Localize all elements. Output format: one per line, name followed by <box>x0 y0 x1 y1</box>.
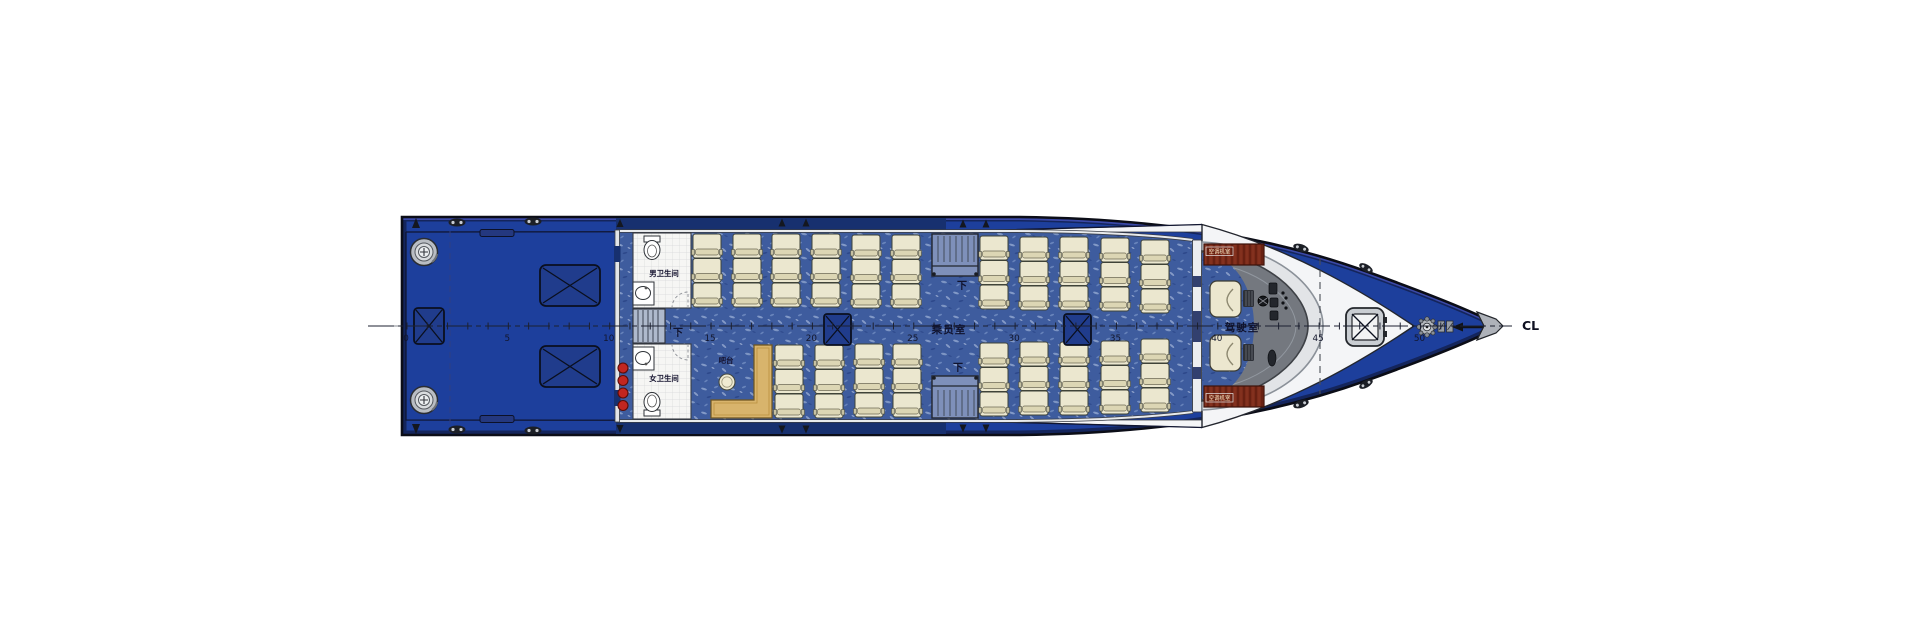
seat-armrest <box>802 361 805 367</box>
seat-backrest <box>1144 403 1167 409</box>
seat-armrest <box>1168 379 1171 385</box>
seat-backrest <box>855 299 878 305</box>
stern-hatch-top <box>540 265 600 306</box>
seat-armrest <box>1059 253 1062 259</box>
frame-number: 0 <box>403 334 409 344</box>
frame-number: 10 <box>603 334 615 344</box>
seat-armrest <box>1059 358 1062 364</box>
ac-cabinet-upper: 空调机室 <box>1204 244 1264 265</box>
rear-door-gap-top <box>614 246 621 262</box>
seat-armrest <box>891 251 894 257</box>
seat-armrest <box>839 250 842 256</box>
seat-armrest <box>851 300 854 306</box>
seat-armrest <box>851 251 854 257</box>
seat-armrest <box>814 361 817 367</box>
seat-armrest <box>1168 355 1171 361</box>
seat-backrest <box>1063 301 1086 307</box>
seat-backrest <box>1144 304 1167 310</box>
sink-basin <box>636 287 651 300</box>
seat-armrest <box>919 275 922 281</box>
seat-armrest <box>771 274 774 280</box>
seat-armrest <box>1047 277 1050 283</box>
seat-backrest <box>983 383 1006 389</box>
seat-armrest <box>979 276 982 282</box>
frame-number: 25 <box>907 334 918 344</box>
seat-backrest <box>1104 302 1127 308</box>
seat-armrest <box>892 360 895 366</box>
seat-armrest <box>802 385 805 391</box>
seat-armrest <box>1140 379 1143 385</box>
seat-armrest <box>879 300 882 306</box>
seat-armrest <box>1087 302 1090 308</box>
seat-armrest <box>1019 253 1022 259</box>
stairs-down-upper-label: 下 <box>957 280 967 292</box>
seat-backrest <box>858 359 881 365</box>
passenger-cabin-label: 乘员室 <box>931 323 967 336</box>
seat-armrest <box>720 299 723 305</box>
seat-backrest <box>736 274 759 280</box>
seat-armrest <box>1047 382 1050 388</box>
seat-armrest <box>1019 407 1022 413</box>
capstan-upper <box>411 239 438 266</box>
seat-armrest <box>692 274 695 280</box>
seat-backrest <box>895 275 918 281</box>
seat-armrest <box>919 300 922 306</box>
frame-number: 50 <box>1414 334 1426 344</box>
seat-armrest <box>811 274 814 280</box>
stairs-down-aft-label: 下 <box>673 327 683 339</box>
seat-armrest <box>1100 278 1103 284</box>
seat-backrest <box>1144 255 1167 261</box>
seat-armrest <box>879 275 882 281</box>
seat-backrest <box>1023 357 1046 363</box>
seat-armrest <box>1007 276 1010 282</box>
seat-armrest <box>1087 358 1090 364</box>
seat-armrest <box>882 384 885 390</box>
seat-armrest <box>882 409 885 415</box>
seat-armrest <box>920 384 923 390</box>
seat-armrest <box>1019 382 1022 388</box>
seat-armrest <box>1100 303 1103 309</box>
seat-armrest <box>760 250 763 256</box>
seat-armrest <box>771 299 774 305</box>
frame-number: 5 <box>505 334 511 344</box>
seat-armrest <box>1059 277 1062 283</box>
seat-armrest <box>1168 404 1171 410</box>
seat-armrest <box>1140 404 1143 410</box>
seat-armrest <box>1059 302 1062 308</box>
sink-tap <box>645 363 648 366</box>
seat-armrest <box>1128 278 1131 284</box>
seat-backrest <box>1104 381 1127 387</box>
seat-armrest <box>892 384 895 390</box>
seat-armrest <box>1047 407 1050 413</box>
seat-armrest <box>842 385 845 391</box>
seat-armrest <box>979 359 982 365</box>
seat-armrest <box>814 385 817 391</box>
seat-armrest <box>799 274 802 280</box>
seat-backrest <box>696 249 719 255</box>
seat-backrest <box>1144 379 1167 385</box>
sink-basin <box>636 352 651 365</box>
seat-armrest <box>979 383 982 389</box>
seat-armrest <box>1059 407 1062 413</box>
frame-number: 40 <box>1211 334 1223 344</box>
seat-backrest <box>895 250 918 256</box>
seat-armrest <box>814 410 817 416</box>
seat-armrest <box>1007 359 1010 365</box>
seat-armrest <box>1047 253 1050 259</box>
seat-backrest <box>1023 382 1046 388</box>
seat-backrest <box>818 385 841 391</box>
ac-cabinet-lower-label: 空调机室 <box>1209 394 1231 402</box>
seat-armrest <box>1168 256 1171 262</box>
cabin-hatch-fwd <box>1064 314 1091 345</box>
seat-backrest <box>696 298 719 304</box>
seat-backrest <box>983 300 1006 306</box>
seat-armrest <box>891 275 894 281</box>
stairwell-upper <box>932 234 978 276</box>
seat-armrest <box>839 274 842 280</box>
sink-tap <box>645 287 648 290</box>
seat-armrest <box>760 299 763 305</box>
seat-backrest <box>775 298 798 304</box>
seat-armrest <box>892 409 895 415</box>
seat-backrest <box>983 251 1006 257</box>
seat-armrest <box>732 299 735 305</box>
seat-backrest <box>775 274 798 280</box>
seat-armrest <box>1047 302 1050 308</box>
seat-armrest <box>774 385 777 391</box>
seat-armrest <box>1168 280 1171 286</box>
seat-backrest <box>896 359 919 365</box>
seat-armrest <box>1019 358 1022 364</box>
seat-armrest <box>979 252 982 258</box>
seat-backrest <box>983 407 1006 413</box>
seat-backrest <box>1063 406 1086 412</box>
seat-backrest <box>815 298 838 304</box>
seat-armrest <box>1128 357 1131 363</box>
seat-backrest <box>1104 253 1127 259</box>
seat-backrest <box>858 408 881 414</box>
seat-backrest <box>1023 406 1046 412</box>
seat-armrest <box>1128 303 1131 309</box>
seat-armrest <box>1007 252 1010 258</box>
console-lower-pad <box>1268 350 1276 366</box>
seat-backrest <box>896 384 919 390</box>
frame-number: 15 <box>704 334 715 344</box>
seat-armrest <box>979 301 982 307</box>
seat-armrest <box>854 360 857 366</box>
seat-armrest <box>1100 406 1103 412</box>
seat-armrest <box>732 274 735 280</box>
seat-backrest <box>736 249 759 255</box>
seat-armrest <box>1007 383 1010 389</box>
seat-backrest <box>1144 354 1167 360</box>
seat-armrest <box>1100 381 1103 387</box>
seat-backrest <box>1063 357 1086 363</box>
seat-armrest <box>1087 253 1090 259</box>
mens-toilet-label: 男卫生间 <box>649 269 679 278</box>
seat-armrest <box>920 409 923 415</box>
seat-armrest <box>732 250 735 256</box>
frame-number: 35 <box>1110 334 1121 344</box>
seat-armrest <box>891 300 894 306</box>
seat-armrest <box>854 384 857 390</box>
seat-armrest <box>811 250 814 256</box>
seat-armrest <box>879 251 882 257</box>
seat-backrest <box>736 298 759 304</box>
seat-backrest <box>818 360 841 366</box>
seat-armrest <box>720 274 723 280</box>
seat-armrest <box>692 299 695 305</box>
seat-backrest <box>855 250 878 256</box>
seat-backrest <box>1023 301 1046 307</box>
seat-backrest <box>775 249 798 255</box>
seat-armrest <box>1128 254 1131 260</box>
seat-backrest <box>696 274 719 280</box>
seat-backrest <box>818 409 841 415</box>
seat-backrest <box>855 275 878 281</box>
seat-armrest <box>979 408 982 414</box>
seat-armrest <box>760 274 763 280</box>
stern-hatch-bottom <box>540 346 600 387</box>
seat-armrest <box>811 299 814 305</box>
seat-armrest <box>1100 254 1103 260</box>
capstan-lower <box>411 387 438 414</box>
cabin-hatch-aft <box>824 314 851 345</box>
frame-number: 30 <box>1008 334 1020 344</box>
seat-armrest <box>1087 407 1090 413</box>
seat-armrest <box>1140 305 1143 311</box>
seat-armrest <box>774 361 777 367</box>
seat-armrest <box>839 299 842 305</box>
seat-backrest <box>983 358 1006 364</box>
seat-backrest <box>1144 280 1167 286</box>
seat-armrest <box>1007 408 1010 414</box>
seat-backrest <box>983 276 1006 282</box>
seat-backrest <box>1063 277 1086 283</box>
centerline-label: CL <box>1522 318 1539 333</box>
womens-toilet-label: 女卫生间 <box>649 374 679 383</box>
seat-armrest <box>771 250 774 256</box>
seat-armrest <box>799 299 802 305</box>
seat-armrest <box>774 410 777 416</box>
seat-armrest <box>720 250 723 256</box>
bar-label: 吧台 <box>719 356 734 365</box>
ac-cabinet-upper-label: 空调机室 <box>1209 248 1231 256</box>
seat-backrest <box>1104 356 1127 362</box>
seat-armrest <box>1059 382 1062 388</box>
seat-armrest <box>842 361 845 367</box>
seat-armrest <box>1007 301 1010 307</box>
seat-armrest <box>1128 406 1131 412</box>
seat-armrest <box>1168 305 1171 311</box>
seat-armrest <box>799 250 802 256</box>
seat-backrest <box>1023 277 1046 283</box>
seat-backrest <box>778 409 801 415</box>
seat-backrest <box>896 408 919 414</box>
ac-cabinet-lower: 空调机室 <box>1204 386 1264 407</box>
seat-backrest <box>1063 252 1086 258</box>
seat-backrest <box>815 249 838 255</box>
frame-number: 45 <box>1313 334 1324 344</box>
seat-backrest <box>1023 252 1046 258</box>
seat-backrest <box>815 274 838 280</box>
seat-armrest <box>692 250 695 256</box>
seat-backrest <box>1104 278 1127 284</box>
seat-backrest <box>778 360 801 366</box>
seat-armrest <box>1140 256 1143 262</box>
seat-backrest <box>1063 382 1086 388</box>
foredeck-hatch <box>1346 308 1387 346</box>
deck-plan-page: 空调机室 空调机室 <box>0 0 1920 620</box>
seat-armrest <box>920 360 923 366</box>
wheelhouse-label: 驾驶室 <box>1225 321 1260 334</box>
stairwell-lower <box>932 376 978 418</box>
seat-backrest <box>1104 405 1127 411</box>
seat-armrest <box>854 409 857 415</box>
seat-armrest <box>1100 357 1103 363</box>
stairs-down-lower-label: 下 <box>953 362 963 374</box>
seat-armrest <box>919 251 922 257</box>
seat-armrest <box>842 410 845 416</box>
seat-armrest <box>1087 382 1090 388</box>
seat-backrest <box>858 384 881 390</box>
seat-backrest <box>778 385 801 391</box>
frame-number: 20 <box>806 334 818 344</box>
seat-armrest <box>1019 302 1022 308</box>
seat-armrest <box>1047 358 1050 364</box>
seat-armrest <box>1128 381 1131 387</box>
seat-armrest <box>802 410 805 416</box>
seat-armrest <box>1087 277 1090 283</box>
seat-armrest <box>851 275 854 281</box>
seat-backrest <box>895 299 918 305</box>
deck-plan-drawing: 空调机室 空调机室 <box>0 0 1920 620</box>
seat-armrest <box>1140 355 1143 361</box>
seat-armrest <box>1019 277 1022 283</box>
seat-armrest <box>882 360 885 366</box>
seat-armrest <box>1140 280 1143 286</box>
